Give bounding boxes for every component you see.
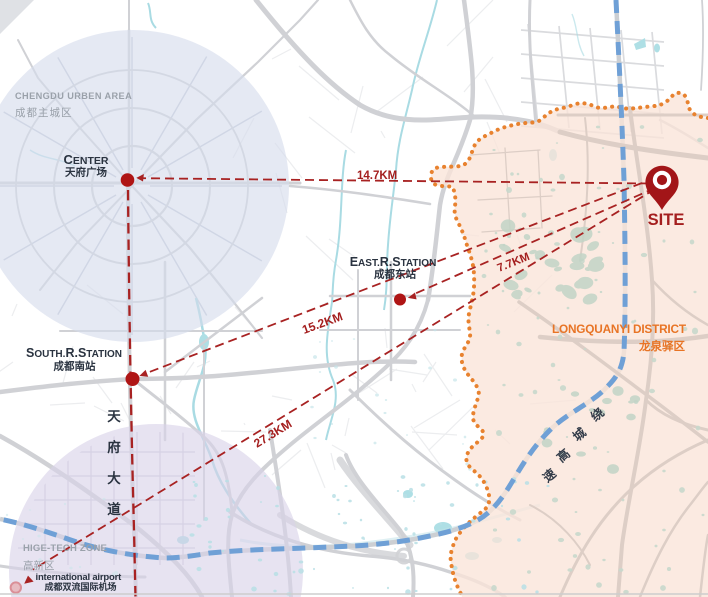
svg-text:龙泉驿区: 龙泉驿区 [638, 339, 685, 353]
svg-text:EAST.R.STATION: EAST.R.STATION [350, 255, 437, 269]
svg-text:14.7KM: 14.7KM [357, 170, 397, 182]
svg-text:成都南站: 成都南站 [54, 360, 96, 373]
svg-text:CENTER: CENTER [64, 152, 109, 167]
svg-text:SITE: SITE [648, 211, 685, 229]
svg-text:天: 天 [107, 409, 121, 424]
svg-text:SOUTH.R.STATION: SOUTH.R.STATION [26, 346, 122, 360]
svg-text:道: 道 [107, 501, 121, 517]
svg-text:LONGQUANYI DISTRICT: LONGQUANYI DISTRICT [552, 322, 687, 336]
svg-text:天府广场: 天府广场 [65, 166, 107, 179]
svg-text:成都主城区: 成都主城区 [15, 107, 73, 119]
svg-text:HIGE-TECH ZONE: HIGE-TECH ZONE [23, 543, 107, 554]
svg-text:成都双流国际机场: 成都双流国际机场 [45, 581, 117, 592]
svg-text:大: 大 [107, 470, 121, 486]
svg-text:CHENGDU URBEN AREA: CHENGDU URBEN AREA [15, 91, 132, 101]
svg-text:高新区: 高新区 [23, 559, 55, 572]
svg-text:成都东站: 成都东站 [374, 268, 416, 281]
svg-text:府: 府 [107, 439, 121, 455]
